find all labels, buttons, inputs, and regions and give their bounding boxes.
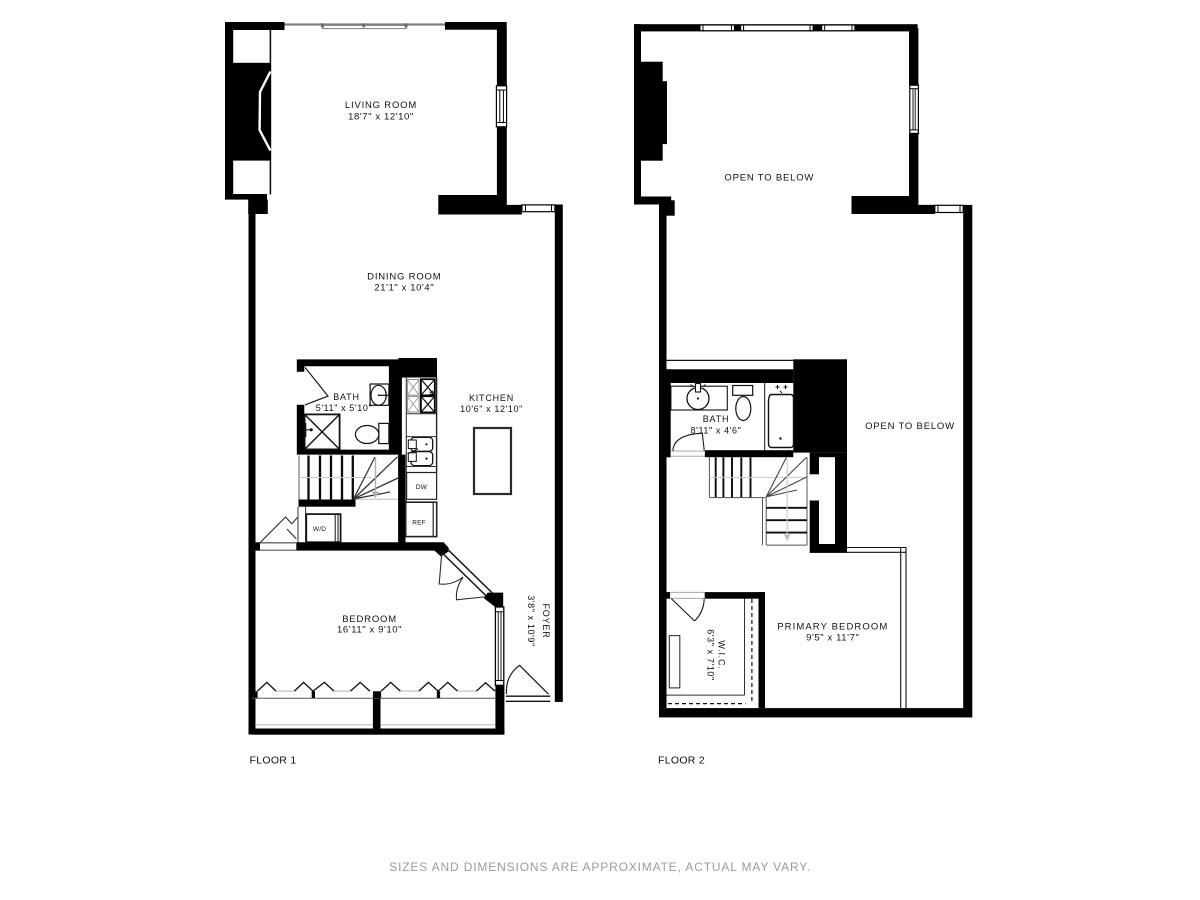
svg-text:5'11" x 5'10": 5'11" x 5'10"	[316, 403, 373, 413]
svg-text:W/D: W/D	[313, 526, 326, 533]
svg-text:REF: REF	[412, 519, 426, 526]
svg-text:OPEN TO BELOW: OPEN TO BELOW	[724, 173, 814, 184]
svg-text:BEDROOM: BEDROOM	[342, 614, 397, 625]
svg-text:DINING ROOM: DINING ROOM	[367, 271, 441, 282]
svg-text:10'6" x 12'10": 10'6" x 12'10"	[460, 404, 523, 414]
svg-text:W.I.C.: W.I.C.	[717, 640, 727, 669]
svg-text:21'1" x 10'4": 21'1" x 10'4"	[374, 282, 434, 293]
svg-text:3'8" x 10'9": 3'8" x 10'9"	[526, 595, 536, 647]
svg-text:BATH: BATH	[333, 392, 360, 402]
svg-text:FLOOR 1: FLOOR 1	[250, 755, 297, 767]
svg-text:PRIMARY BEDROOM: PRIMARY BEDROOM	[777, 621, 888, 632]
svg-text:16'11" x 9'10": 16'11" x 9'10"	[337, 625, 402, 636]
svg-text:18'7" x 12'10": 18'7" x 12'10"	[348, 111, 414, 122]
svg-text:LIVING ROOM: LIVING ROOM	[345, 100, 417, 111]
svg-text:SIZES AND DIMENSIONS ARE APPRO: SIZES AND DIMENSIONS ARE APPROXIMATE, AC…	[389, 860, 811, 874]
svg-text:OPEN TO BELOW: OPEN TO BELOW	[865, 421, 955, 432]
svg-text:6'3" x 7'10": 6'3" x 7'10"	[706, 629, 716, 681]
svg-text:9'5" x 11'7": 9'5" x 11'7"	[806, 632, 859, 643]
svg-text:BATH: BATH	[703, 414, 730, 424]
svg-text:FLOOR 2: FLOOR 2	[658, 755, 705, 767]
svg-text:KITCHEN: KITCHEN	[469, 393, 514, 403]
svg-text:8'11" x 4'6": 8'11" x 4'6"	[691, 425, 742, 435]
svg-text:DW: DW	[416, 484, 428, 491]
svg-text:FOYER: FOYER	[541, 603, 551, 638]
